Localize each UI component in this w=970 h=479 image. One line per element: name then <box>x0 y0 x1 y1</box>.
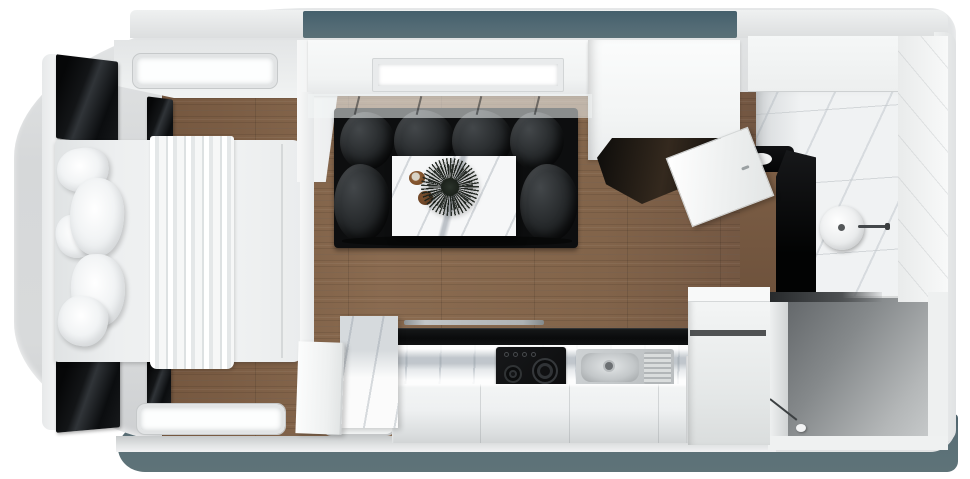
cushion-seam <box>416 96 423 115</box>
storage-right-wall <box>928 292 948 444</box>
ceiling-cut-glass <box>308 94 592 118</box>
sofa-cushion <box>334 164 390 242</box>
sofa-cushion <box>340 112 394 170</box>
kitchen-sink <box>576 349 674 387</box>
bedroom-window-bottom <box>137 404 285 434</box>
storage-top-lip <box>768 292 882 302</box>
counter-left-block <box>340 316 398 428</box>
floorplan-render <box>0 0 970 479</box>
hob-knob <box>513 352 518 357</box>
cabinet-top-seam <box>690 330 766 336</box>
lounge-skylight <box>372 58 564 92</box>
cooktop <box>496 347 566 389</box>
hob-knob <box>522 352 527 357</box>
cushion-seam <box>476 96 483 115</box>
hob-knob <box>504 352 509 357</box>
counter-front <box>392 384 690 443</box>
towel-rail <box>404 320 544 325</box>
kitchen-tall-cabinet <box>688 287 770 445</box>
bathroom-right-wall <box>898 36 948 302</box>
overhead-cabinet-bottom-a <box>56 355 120 433</box>
cushion-seam <box>534 96 541 115</box>
bed-crease <box>281 144 283 358</box>
counter-top-edge <box>392 328 690 345</box>
hob-knob <box>531 352 536 357</box>
burner-large <box>532 358 558 384</box>
overhead-cabinet-top-a <box>56 54 118 146</box>
sofa-cushion <box>510 112 564 170</box>
sink-drainer <box>644 352 671 384</box>
storage-bottom-wall <box>768 436 948 450</box>
bedroom-lounge-wall <box>300 92 314 346</box>
basin-faucet <box>858 225 888 228</box>
plant <box>421 158 479 216</box>
storage-pebble <box>796 424 806 432</box>
roof-window-band <box>303 11 737 38</box>
cushion-seam <box>354 96 361 115</box>
shower-column <box>776 150 816 298</box>
bedroom-window-top <box>133 54 277 88</box>
bed-sheet-drape <box>150 136 234 369</box>
storage-floor <box>774 298 934 442</box>
sofa-base-shadow <box>342 236 572 246</box>
storage-left-wall <box>768 296 788 444</box>
sofa-cushion <box>520 164 578 242</box>
round-basin <box>820 206 864 250</box>
partition-door <box>295 341 344 435</box>
sink-faucet <box>605 362 613 370</box>
burner-small <box>504 365 522 383</box>
